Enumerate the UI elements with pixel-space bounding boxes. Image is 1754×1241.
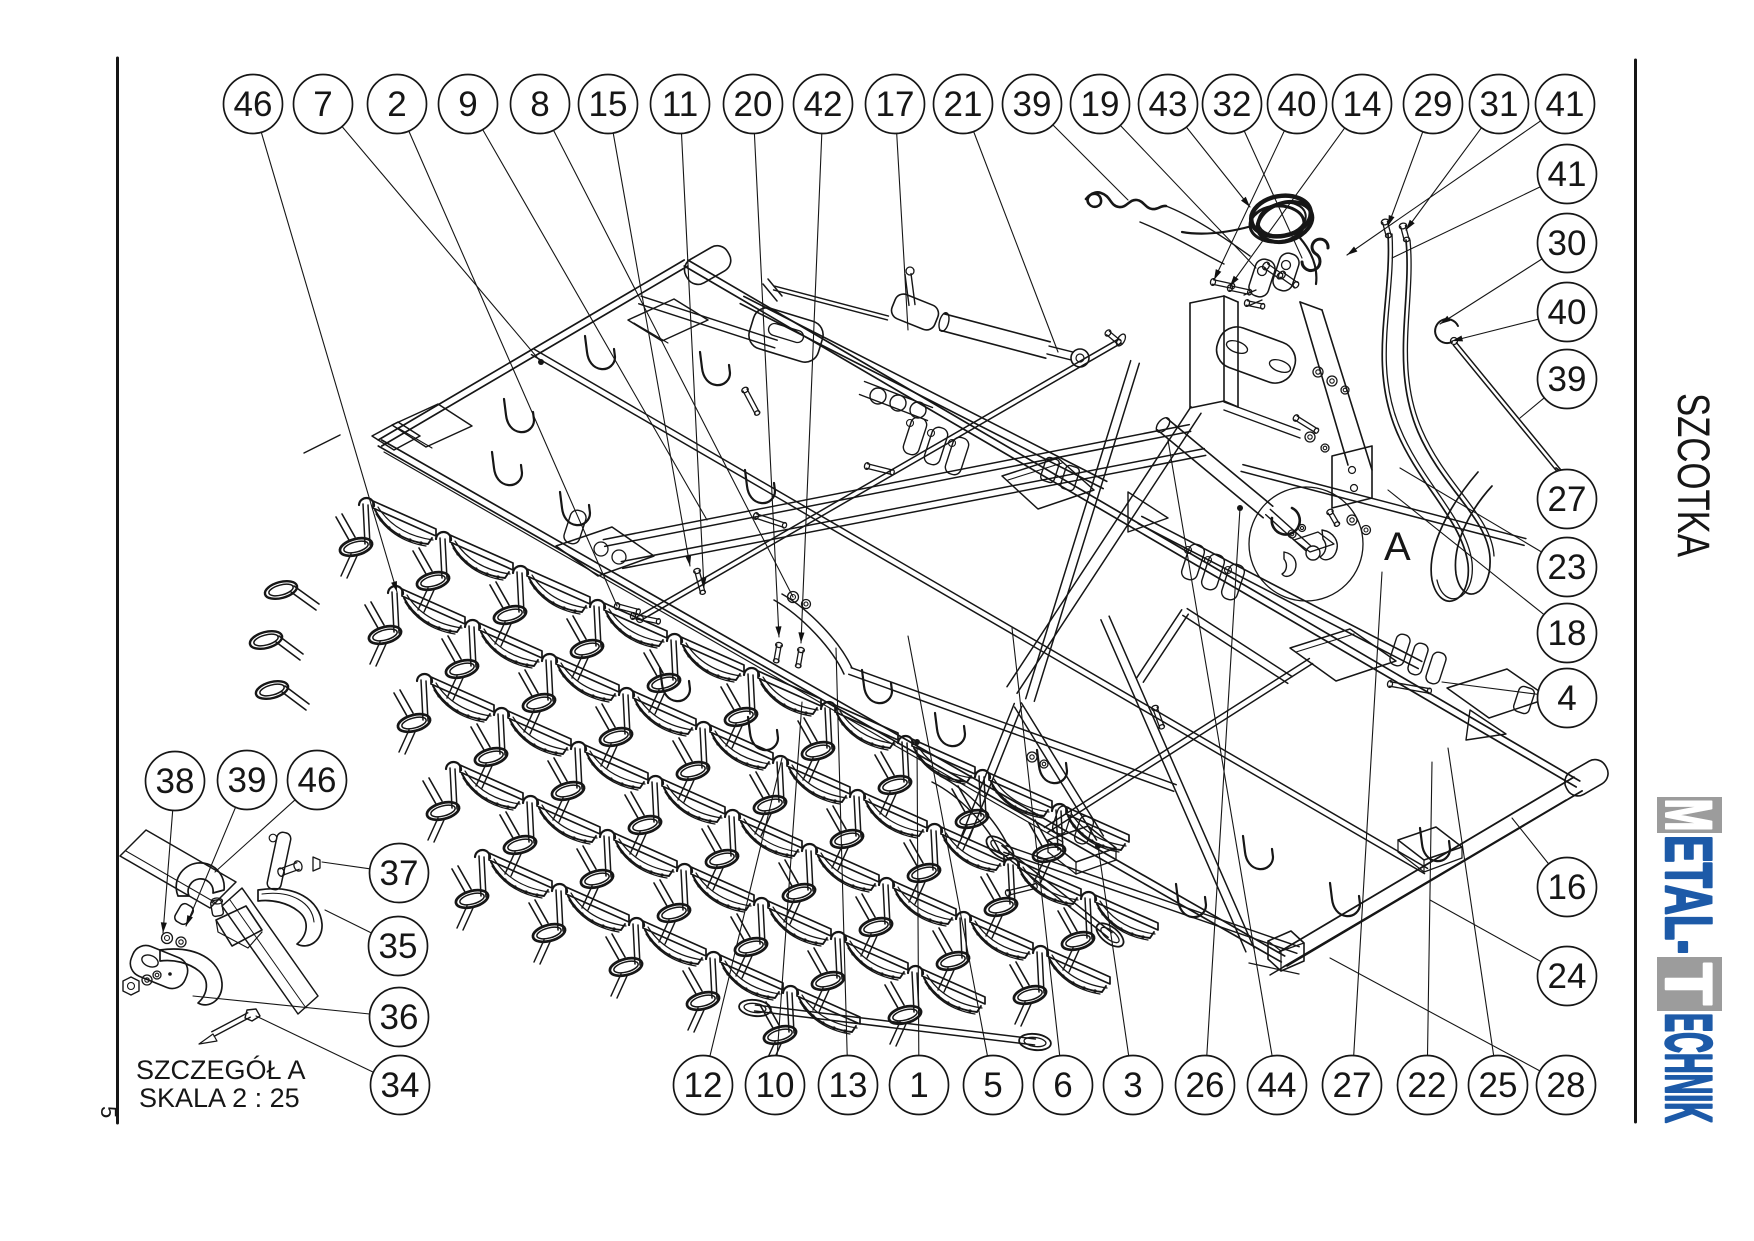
svg-text:28: 28	[1547, 1066, 1586, 1105]
svg-text:8: 8	[530, 85, 549, 124]
svg-text:1: 1	[909, 1066, 928, 1105]
svg-text:22: 22	[1408, 1066, 1447, 1105]
svg-text:6: 6	[1053, 1066, 1072, 1105]
svg-text:38: 38	[156, 762, 195, 801]
svg-text:10: 10	[756, 1066, 795, 1105]
svg-text:16: 16	[1548, 868, 1587, 907]
svg-text:19: 19	[1081, 85, 1120, 124]
svg-text:29: 29	[1414, 85, 1453, 124]
svg-text:32: 32	[1213, 85, 1252, 124]
svg-text:M: M	[1652, 799, 1726, 832]
svg-text:17: 17	[876, 85, 915, 124]
svg-text:ECHNIK: ECHNIK	[1652, 1013, 1726, 1123]
svg-text:23: 23	[1548, 548, 1587, 587]
svg-text:27: 27	[1333, 1066, 1372, 1105]
svg-text:A: A	[1384, 525, 1411, 569]
svg-text:39: 39	[1013, 85, 1052, 124]
svg-text:39: 39	[228, 761, 267, 800]
svg-text:SZCOTKA: SZCOTKA	[1668, 393, 1719, 557]
svg-text:15: 15	[589, 85, 628, 124]
svg-text:40: 40	[1278, 85, 1317, 124]
svg-text:18: 18	[1548, 614, 1587, 653]
svg-text:42: 42	[804, 85, 843, 124]
svg-text:26: 26	[1186, 1066, 1225, 1105]
svg-text:4: 4	[1557, 679, 1576, 718]
svg-text:13: 13	[829, 1066, 868, 1105]
svg-text:12: 12	[684, 1066, 723, 1105]
svg-text:36: 36	[380, 998, 419, 1037]
svg-text:46: 46	[234, 85, 273, 124]
svg-text:5: 5	[96, 1106, 121, 1118]
svg-text:46: 46	[298, 761, 337, 800]
svg-text:T: T	[1652, 963, 1726, 1005]
svg-text:44: 44	[1258, 1066, 1297, 1105]
svg-text:24: 24	[1548, 957, 1587, 996]
svg-text:14: 14	[1343, 85, 1382, 124]
svg-text:5: 5	[983, 1066, 1002, 1105]
svg-text:39: 39	[1548, 360, 1587, 399]
svg-text:41: 41	[1548, 155, 1587, 194]
svg-text:34: 34	[381, 1066, 420, 1105]
svg-text:SZCZEGÓŁ A: SZCZEGÓŁ A	[136, 1054, 306, 1085]
svg-text:37: 37	[380, 854, 419, 893]
svg-text:9: 9	[458, 85, 477, 124]
svg-text:41: 41	[1546, 85, 1585, 124]
svg-text:40: 40	[1548, 293, 1587, 332]
svg-text:2: 2	[387, 85, 406, 124]
svg-text:11: 11	[662, 85, 698, 124]
svg-text:31: 31	[1480, 85, 1519, 124]
svg-text:3: 3	[1123, 1066, 1142, 1105]
svg-text:35: 35	[379, 927, 418, 966]
svg-text:25: 25	[1479, 1066, 1518, 1105]
svg-text:30: 30	[1548, 224, 1587, 263]
svg-text:ETAL-: ETAL-	[1652, 835, 1726, 954]
svg-text:SKALA 2 : 25: SKALA 2 : 25	[139, 1083, 300, 1113]
svg-text:27: 27	[1548, 480, 1587, 519]
svg-text:20: 20	[734, 85, 773, 124]
svg-text:7: 7	[313, 85, 332, 124]
svg-text:21: 21	[944, 85, 983, 124]
svg-text:43: 43	[1149, 85, 1188, 124]
